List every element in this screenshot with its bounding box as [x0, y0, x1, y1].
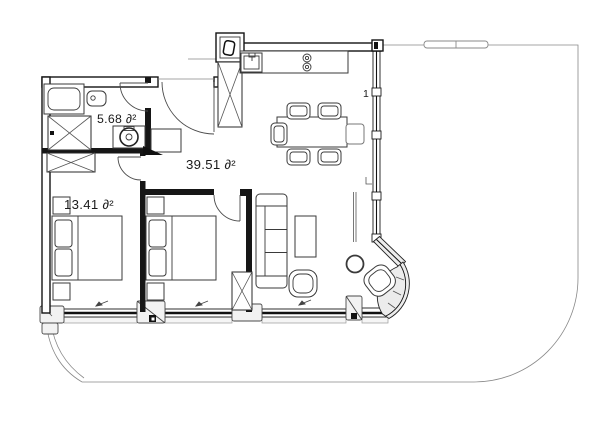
window-number-mark: 1 — [363, 88, 369, 100]
bedroom2-door — [214, 195, 240, 221]
window-segment — [165, 309, 232, 323]
opening-arrow — [196, 301, 208, 306]
kitchen-sink — [241, 53, 262, 72]
coffee-table — [295, 216, 316, 257]
window-opening-marks — [96, 300, 311, 306]
shower-tray — [48, 116, 91, 150]
opening-arrow — [96, 301, 108, 306]
mullion-joint — [372, 192, 381, 200]
area-label-bedroom: 13.41 ∂² — [64, 197, 114, 212]
bed — [146, 216, 216, 280]
diagonal-window — [374, 237, 406, 269]
terrace-outline — [42, 41, 578, 382]
structural-column — [232, 272, 252, 310]
wardrobe — [47, 153, 95, 172]
corner-mark — [366, 177, 372, 184]
washbasin — [87, 91, 106, 106]
floor-plan-canvas: 5.68 ∂² 39.51 ∂² 13.41 ∂² 1 — [0, 0, 603, 429]
bed — [52, 216, 122, 280]
opening-arrow — [299, 300, 311, 305]
area-label-living: 39.51 ∂² — [186, 157, 236, 172]
pillow — [55, 249, 72, 276]
bedroom-door — [118, 157, 141, 180]
dining-chair — [318, 149, 341, 165]
dining-chair — [271, 123, 287, 145]
bathtub — [44, 84, 84, 114]
washing-machine — [113, 126, 145, 148]
corner-block — [372, 40, 383, 51]
window-pier — [346, 296, 362, 320]
area-label-bathroom: 5.68 ∂² — [97, 112, 137, 126]
sofa — [256, 194, 287, 288]
dining-chair — [346, 124, 364, 144]
terrace-step — [42, 323, 58, 334]
mullion-joint — [372, 131, 381, 139]
entry-door — [158, 79, 214, 134]
pillow — [149, 220, 166, 247]
window-segment — [64, 309, 137, 323]
pillow — [149, 249, 166, 276]
nightstand — [147, 283, 164, 300]
glazed-right-wall — [372, 51, 381, 242]
mullion-joint — [372, 88, 381, 96]
nightstand — [147, 197, 164, 214]
side-table — [347, 256, 364, 273]
radiator-line — [354, 192, 357, 242]
dining-chair — [287, 103, 310, 119]
bottom-window-band — [64, 308, 388, 323]
nightstand — [53, 283, 70, 300]
dining-chair — [318, 103, 341, 119]
window-segment — [262, 309, 346, 323]
dining-chair — [287, 149, 310, 165]
armchair — [289, 270, 317, 297]
pillow — [55, 220, 72, 247]
ventilation-shaft — [218, 62, 242, 127]
